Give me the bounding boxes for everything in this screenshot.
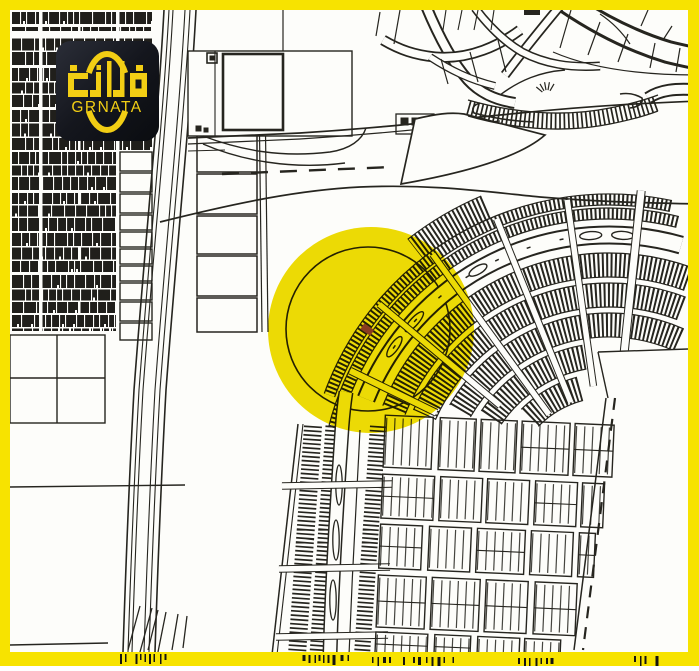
svg-text:GRNATA: GRNATA (71, 99, 142, 116)
